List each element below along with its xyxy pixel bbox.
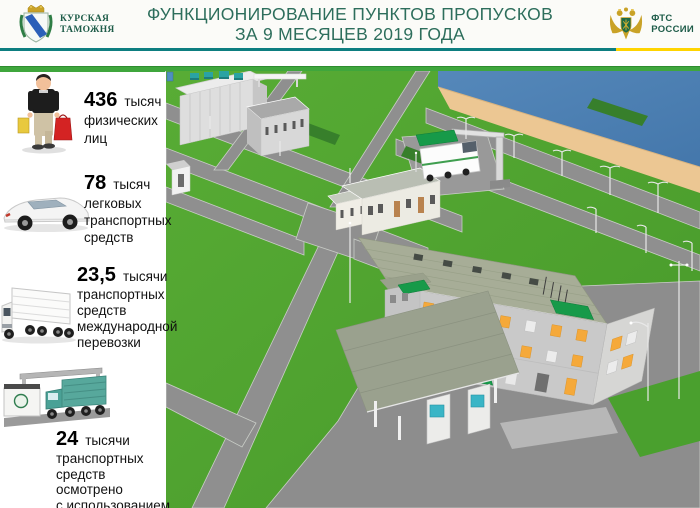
slide: КУРСКАЯ ТАМОЖНЯ ФУНКЦИОНИРОВАНИЕ ПУНКТОВ… bbox=[0, 0, 700, 508]
inspection-booth bbox=[468, 384, 490, 434]
title-line-2: ЗА 9 МЕСЯЦЕВ 2019 ГОДА bbox=[105, 25, 595, 45]
stat-unit: тысяч bbox=[124, 94, 161, 109]
stat-value: 436 bbox=[84, 89, 117, 111]
car-icon bbox=[0, 180, 92, 238]
stat-line: транспортных bbox=[84, 212, 166, 229]
stat-unit: тысячи bbox=[123, 269, 168, 284]
stat-line: физических bbox=[84, 112, 166, 130]
stat-value: 23,5 bbox=[77, 264, 116, 286]
title-line-1: ФУНКЦИОНИРОВАНИЕ ПУНКТОВ ПРОПУСКОВ bbox=[105, 5, 595, 25]
header: КУРСКАЯ ТАМОЖНЯ ФУНКЦИОНИРОВАНИЕ ПУНКТОВ… bbox=[0, 0, 700, 48]
stat-individuals: 436тысяч физических лиц bbox=[84, 89, 166, 148]
stat-value: 78 bbox=[84, 172, 106, 194]
kursk-customs-logo: КУРСКАЯ ТАМОЖНЯ bbox=[18, 5, 115, 45]
stat-value: 24 bbox=[56, 428, 78, 450]
stat-line: международной bbox=[77, 319, 169, 335]
logo-line: РОССИИ bbox=[651, 24, 694, 35]
fts-russia-logo: ФТС РОССИИ bbox=[606, 4, 694, 44]
person-with-bags-icon bbox=[12, 74, 76, 154]
stat-line: с использованием bbox=[56, 498, 174, 508]
cargo-truck-icon bbox=[0, 280, 78, 348]
stat-line: легковых bbox=[84, 195, 166, 212]
stat-cars: 78тысяч легковых транспортных средств bbox=[84, 172, 166, 246]
scanner-truck-icon bbox=[0, 362, 114, 432]
statistics-sidebar: 436тысяч физических лиц 78тысяч легковых… bbox=[0, 72, 166, 508]
stat-line: средств bbox=[84, 229, 166, 246]
stat-line: транспортных bbox=[77, 287, 169, 303]
fts-logo-text: ФТС РОССИИ bbox=[651, 13, 694, 35]
logo-line: ФТС bbox=[651, 13, 694, 24]
inspection-booth bbox=[427, 394, 450, 444]
blue-kiosk bbox=[167, 72, 173, 81]
kursk-customs-crest-icon bbox=[18, 5, 54, 45]
stat-line: средств bbox=[77, 303, 169, 319]
page-title: ФУНКЦИОНИРОВАНИЕ ПУНКТОВ ПРОПУСКОВ ЗА 9 … bbox=[105, 5, 595, 44]
service-building bbox=[247, 97, 309, 156]
stat-inspected-midk: 24тысячи транспортных средств осмотрено … bbox=[56, 428, 174, 508]
stat-transport-international: 23,5тысячи транспортных средств междунар… bbox=[77, 264, 169, 351]
stat-unit: тысячи bbox=[85, 433, 130, 448]
stat-line: средств осмотрено bbox=[56, 467, 174, 498]
stat-line: лиц bbox=[84, 130, 166, 148]
header-divider-yellow bbox=[616, 48, 700, 51]
checkpoint-3d-render bbox=[165, 71, 700, 508]
header-divider-teal bbox=[0, 48, 616, 51]
stat-unit: тысяч bbox=[113, 177, 150, 192]
stat-line: транспортных bbox=[56, 451, 174, 467]
stat-line: перевозки bbox=[77, 335, 169, 351]
fts-eagle-icon bbox=[606, 4, 646, 44]
